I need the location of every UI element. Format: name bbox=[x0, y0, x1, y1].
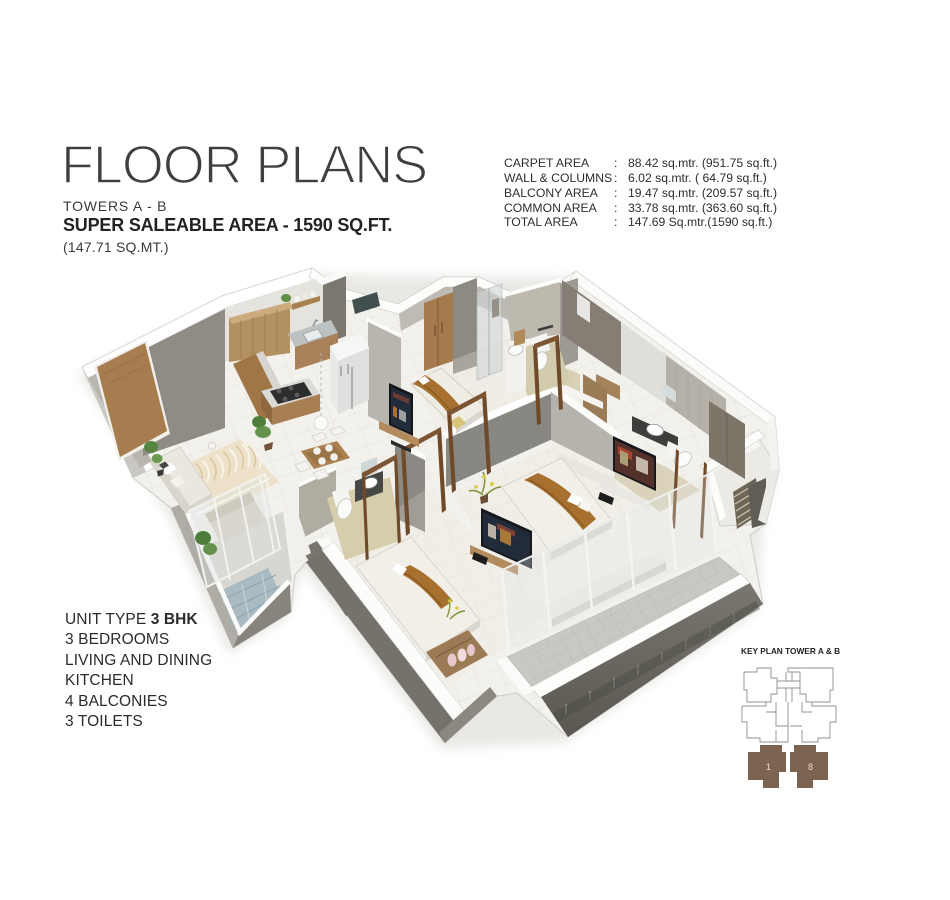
svg-text:8: 8 bbox=[808, 762, 813, 772]
svg-text:1: 1 bbox=[766, 762, 771, 772]
